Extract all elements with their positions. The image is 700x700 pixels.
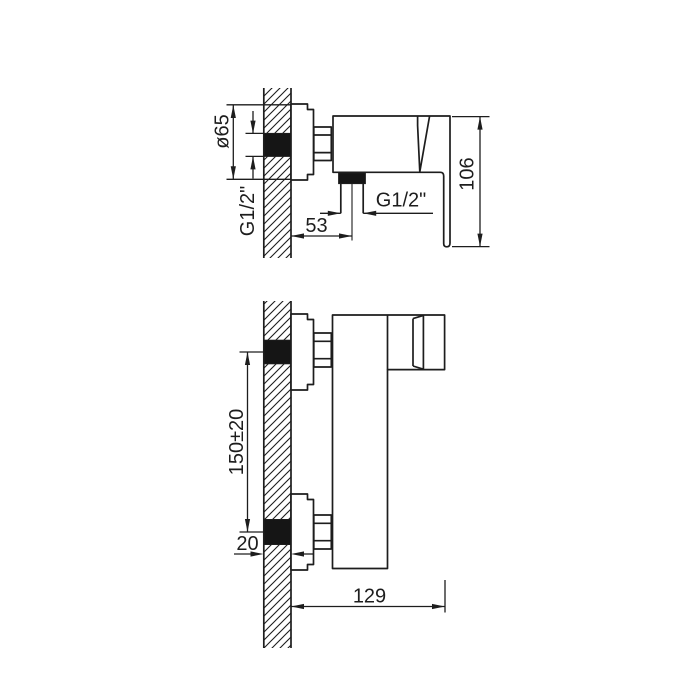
- arrowhead: [291, 233, 304, 238]
- arrowhead: [339, 233, 352, 238]
- arrowhead: [477, 117, 482, 130]
- dim-connection-spacing: 150±20: [226, 352, 264, 532]
- arrowhead: [245, 519, 250, 532]
- outlet-seal: [339, 173, 366, 184]
- drawing-page: ø65 G1/2" 53 G1/2": [0, 0, 700, 700]
- dim-label-height: 106: [457, 157, 479, 190]
- dim-height: 106: [452, 117, 490, 247]
- dim-label-connection-spacing: 150±20: [226, 409, 248, 476]
- lower-mounting-flange: [291, 494, 314, 570]
- dim-label-eccentric-depth: 20: [236, 533, 258, 555]
- dim-label-inlet-thread: G1/2": [237, 186, 259, 236]
- arrowhead: [231, 166, 236, 179]
- upper-inlet-seal: [264, 340, 291, 364]
- dim-label-outlet-offset: 53: [305, 215, 327, 237]
- lower-union-nut: [314, 515, 332, 549]
- arrowhead: [250, 121, 255, 134]
- inlet-seal: [264, 133, 291, 156]
- arrowhead: [363, 211, 376, 216]
- upper-union-nut: [314, 333, 332, 367]
- arrowhead: [250, 156, 255, 169]
- arrowhead: [477, 234, 482, 247]
- upper-mounting-flange: [291, 314, 314, 390]
- arrowhead: [328, 211, 341, 216]
- mixer-body-outline: [333, 315, 445, 569]
- technical-drawing: ø65 G1/2" 53 G1/2": [0, 0, 700, 700]
- union-nut: [314, 127, 332, 161]
- arrowhead: [245, 352, 250, 365]
- side-view: ø65 G1/2" 53 G1/2": [212, 88, 490, 258]
- dim-label-flange-diameter: ø65: [212, 114, 234, 148]
- arrowhead: [432, 604, 445, 609]
- dim-overall-depth: 129: [291, 580, 445, 613]
- lower-inlet-seal: [264, 520, 291, 545]
- dim-inlet-thread: G1/2": [237, 111, 264, 236]
- dim-outlet-offset: 53: [291, 215, 352, 239]
- wall-hatch: [264, 88, 291, 258]
- arrowhead: [291, 604, 304, 609]
- dim-outlet-thread: G1/2": [320, 190, 433, 216]
- dim-label-overall-depth: 129: [353, 586, 386, 608]
- front-view: 150±20 20 129: [226, 301, 445, 648]
- dim-label-outlet-thread: G1/2": [376, 190, 426, 212]
- mounting-flange: [291, 104, 314, 180]
